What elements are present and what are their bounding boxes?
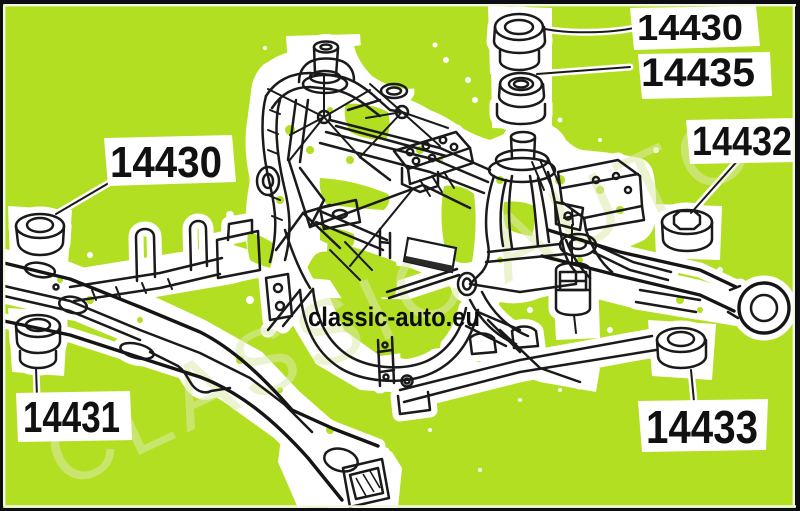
svg-text:14430: 14430 bbox=[110, 138, 222, 187]
svg-text:classic-auto.eu: classic-auto.eu bbox=[308, 302, 480, 332]
svg-text:14431: 14431 bbox=[23, 393, 120, 442]
svg-text:14435: 14435 bbox=[641, 51, 755, 95]
svg-text:14430: 14430 bbox=[637, 7, 743, 48]
svg-text:14432: 14432 bbox=[692, 118, 792, 164]
svg-text:14433: 14433 bbox=[646, 401, 758, 453]
